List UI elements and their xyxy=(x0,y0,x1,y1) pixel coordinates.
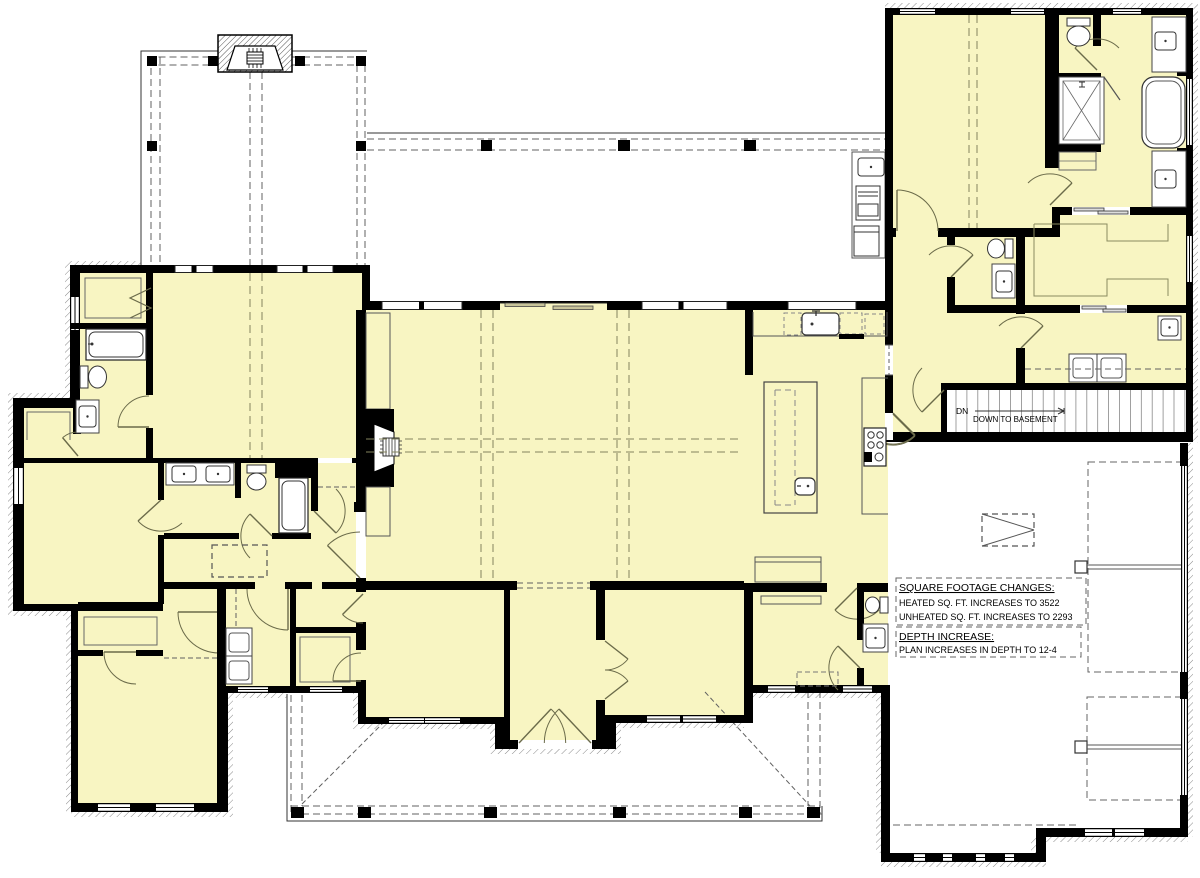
svg-text:DN: DN xyxy=(956,406,968,416)
svg-text:SQUARE FOOTAGE CHANGES:: SQUARE FOOTAGE CHANGES: xyxy=(899,582,1055,594)
svg-text:DEPTH INCREASE:: DEPTH INCREASE: xyxy=(899,631,994,643)
svg-text:HEATED SQ. FT. INCREASES TO 35: HEATED SQ. FT. INCREASES TO 3522 xyxy=(899,598,1060,608)
svg-text:UNHEATED SQ. FT. INCREASES TO: UNHEATED SQ. FT. INCREASES TO 2293 xyxy=(899,612,1073,622)
svg-text:DOWN TO BASEMENT: DOWN TO BASEMENT xyxy=(973,415,1058,424)
svg-text:PLAN INCREASES IN DEPTH TO 12-: PLAN INCREASES IN DEPTH TO 12-4 xyxy=(899,645,1057,655)
